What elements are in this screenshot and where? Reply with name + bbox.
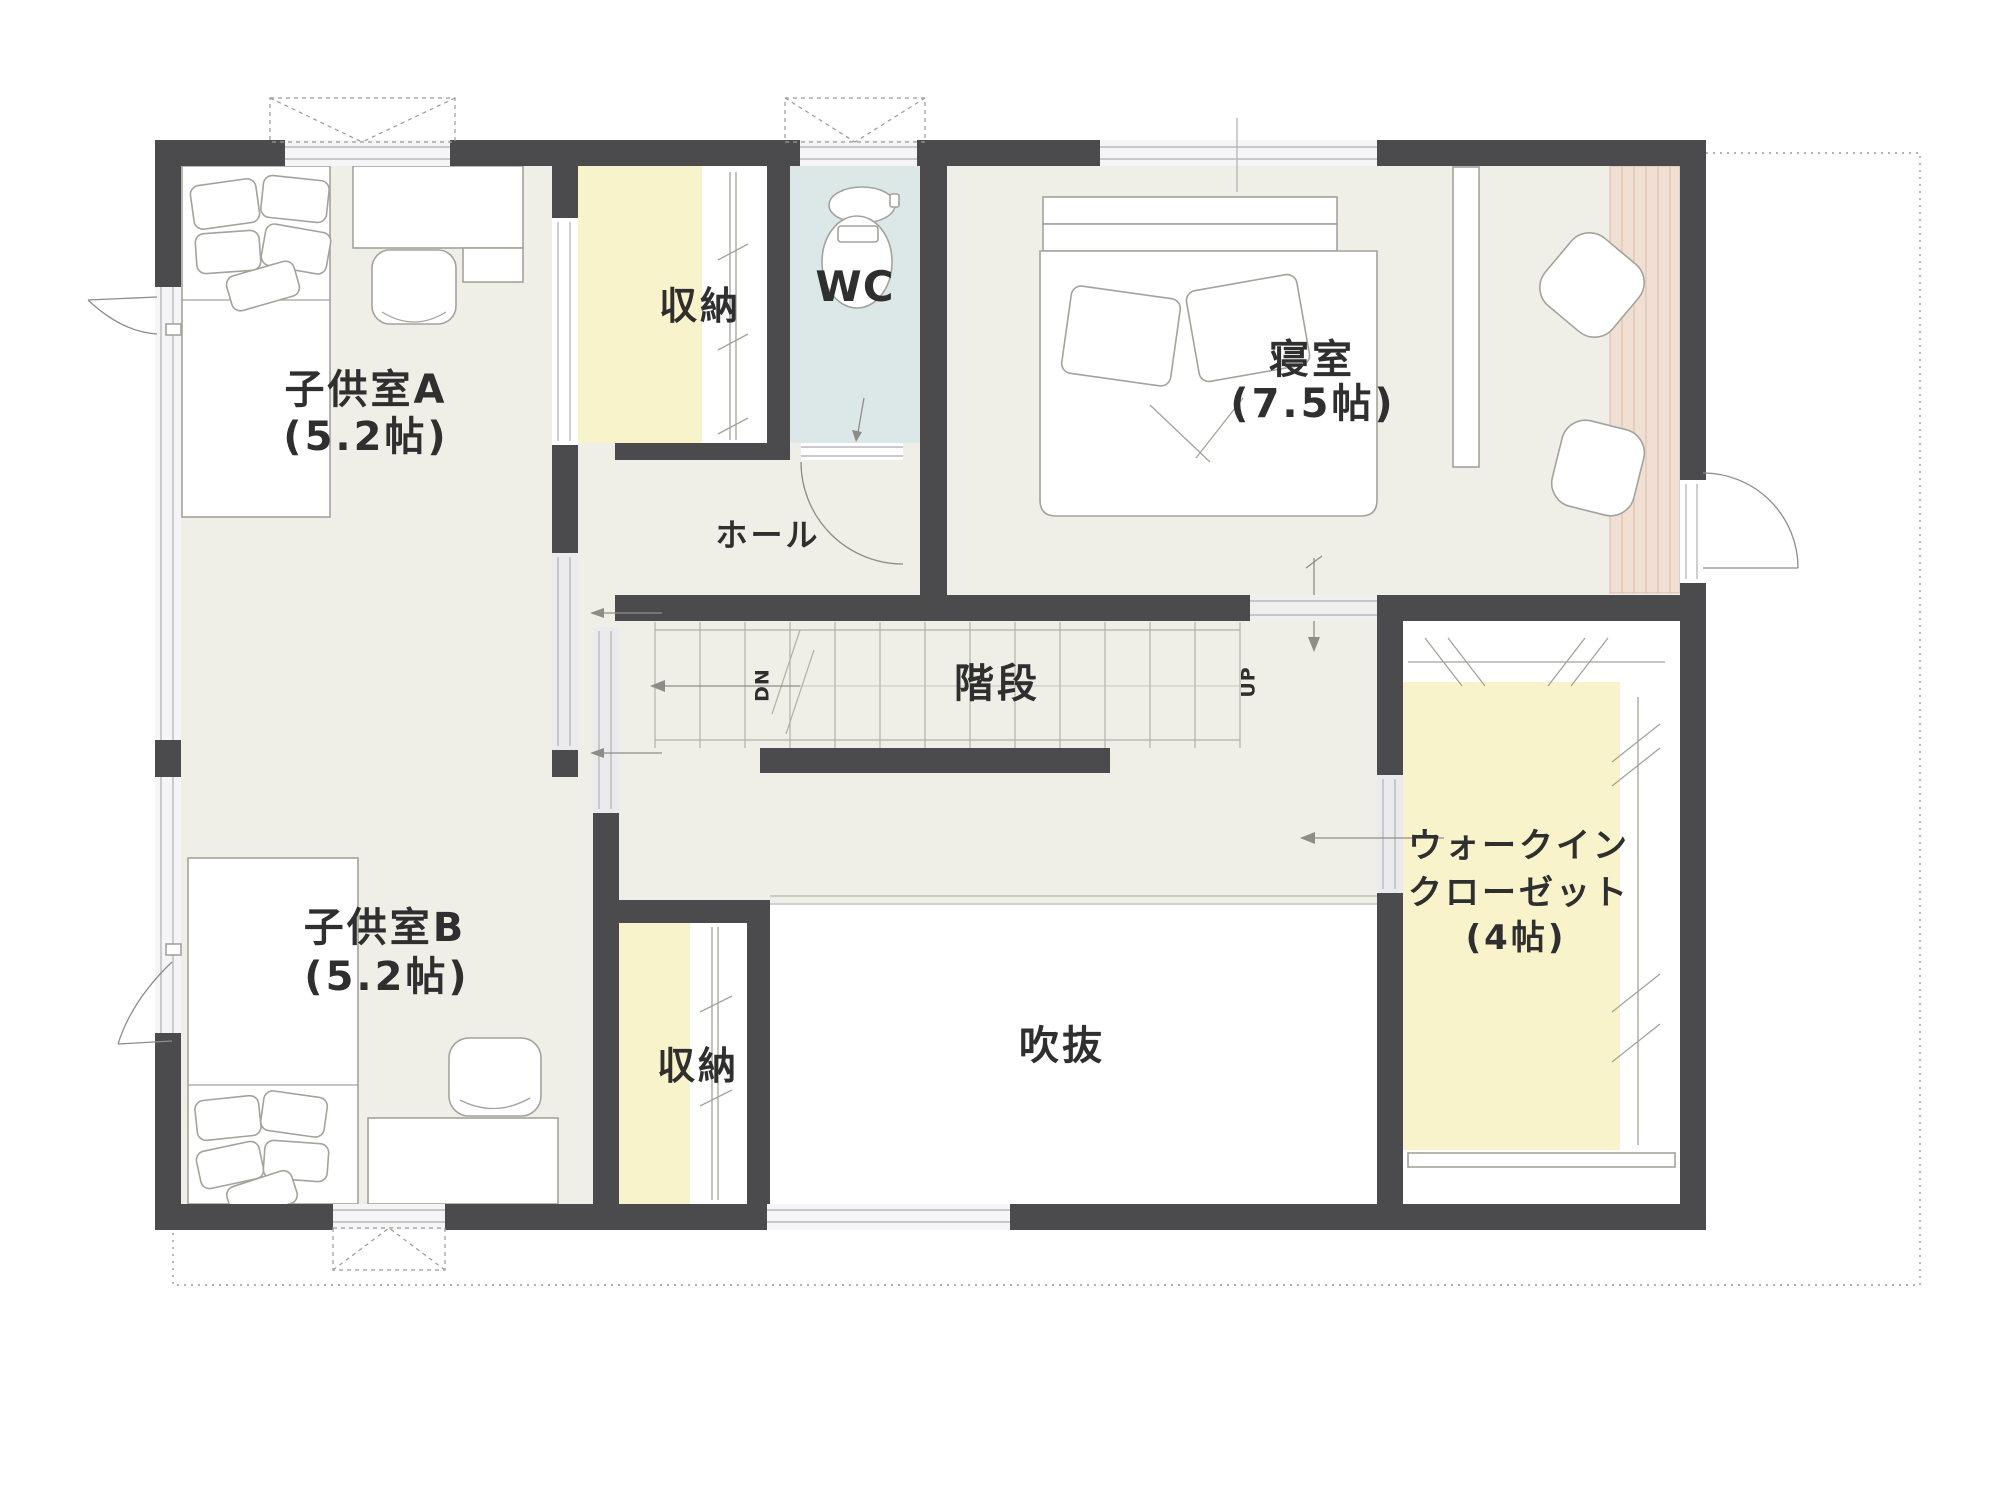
- label-storage-top: 収納: [659, 287, 741, 325]
- wc-door: [801, 443, 903, 460]
- label-wc: WC: [815, 266, 894, 308]
- label-wic-size: (4帖): [1466, 921, 1567, 955]
- floor-plan-drawing: [0, 0, 1999, 1500]
- label-kids-room-a-size: (5.2帖): [283, 417, 448, 457]
- wic-shelf: [1408, 1153, 1675, 1167]
- window-kids-a-top: [285, 140, 450, 166]
- label-kids-room-a: 子供室A: [285, 370, 448, 410]
- label-kids-room-b-size: (5.2帖): [304, 957, 469, 997]
- wic-floor: [1403, 682, 1620, 1150]
- window-bedroom: [1100, 140, 1377, 166]
- window-wc: [800, 140, 917, 166]
- counter-shelf-bedroom: [1453, 167, 1479, 467]
- label-storage-bottom: 収納: [657, 1047, 739, 1085]
- label-void: 吹抜: [1019, 1026, 1105, 1066]
- desk-return-kids-a: [463, 248, 523, 282]
- chair-kids-b: [449, 1038, 541, 1116]
- pillow: [260, 1090, 329, 1139]
- label-stairs-down: DN: [754, 668, 773, 702]
- window-void: [767, 1204, 1010, 1230]
- closet-top-door: [552, 218, 578, 445]
- label-wic-line2: クローゼット: [1408, 876, 1630, 910]
- pillow: [260, 175, 330, 224]
- label-hall: ホール: [715, 519, 820, 551]
- bedroom-doorway: [1250, 595, 1377, 621]
- headboard-shelf: [1043, 197, 1337, 224]
- pillow: [194, 1095, 262, 1141]
- sliding-door-wic: [1377, 775, 1403, 893]
- window-kids-b-bottom: [333, 1204, 445, 1230]
- window-kids-b-left: [155, 777, 181, 1033]
- balcony-door: [1680, 480, 1706, 583]
- label-wic-line1: ウォークイン: [1408, 829, 1630, 863]
- desk-kids-a: [353, 166, 523, 248]
- headboard-shelf: [1043, 224, 1337, 251]
- label-stairs-up: UP: [1240, 666, 1259, 697]
- desk-kids-b: [368, 1118, 558, 1204]
- floor-plan-2f: 子供室A (5.2帖) 収納 WC 寝室 (7.5帖) ホール 階段 DN UP…: [0, 0, 1999, 1500]
- window-handle: [166, 944, 181, 955]
- casement-swing-kids-a: [88, 297, 157, 334]
- pillow: [1060, 285, 1181, 387]
- label-bedroom-size: (7.5帖): [1230, 384, 1395, 424]
- pillow: [189, 178, 260, 231]
- sliding-door-kids-a: [552, 553, 578, 750]
- window-handle: [166, 324, 181, 335]
- label-kids-room-b: 子供室B: [304, 908, 467, 948]
- pillow: [195, 230, 262, 274]
- label-stairs: 階段: [954, 664, 1040, 704]
- balcony-door-swing: [1703, 473, 1798, 568]
- label-bedroom: 寝室: [1269, 340, 1355, 380]
- sliding-door-kids-b: [593, 627, 619, 813]
- window-kids-a-left: [155, 287, 181, 740]
